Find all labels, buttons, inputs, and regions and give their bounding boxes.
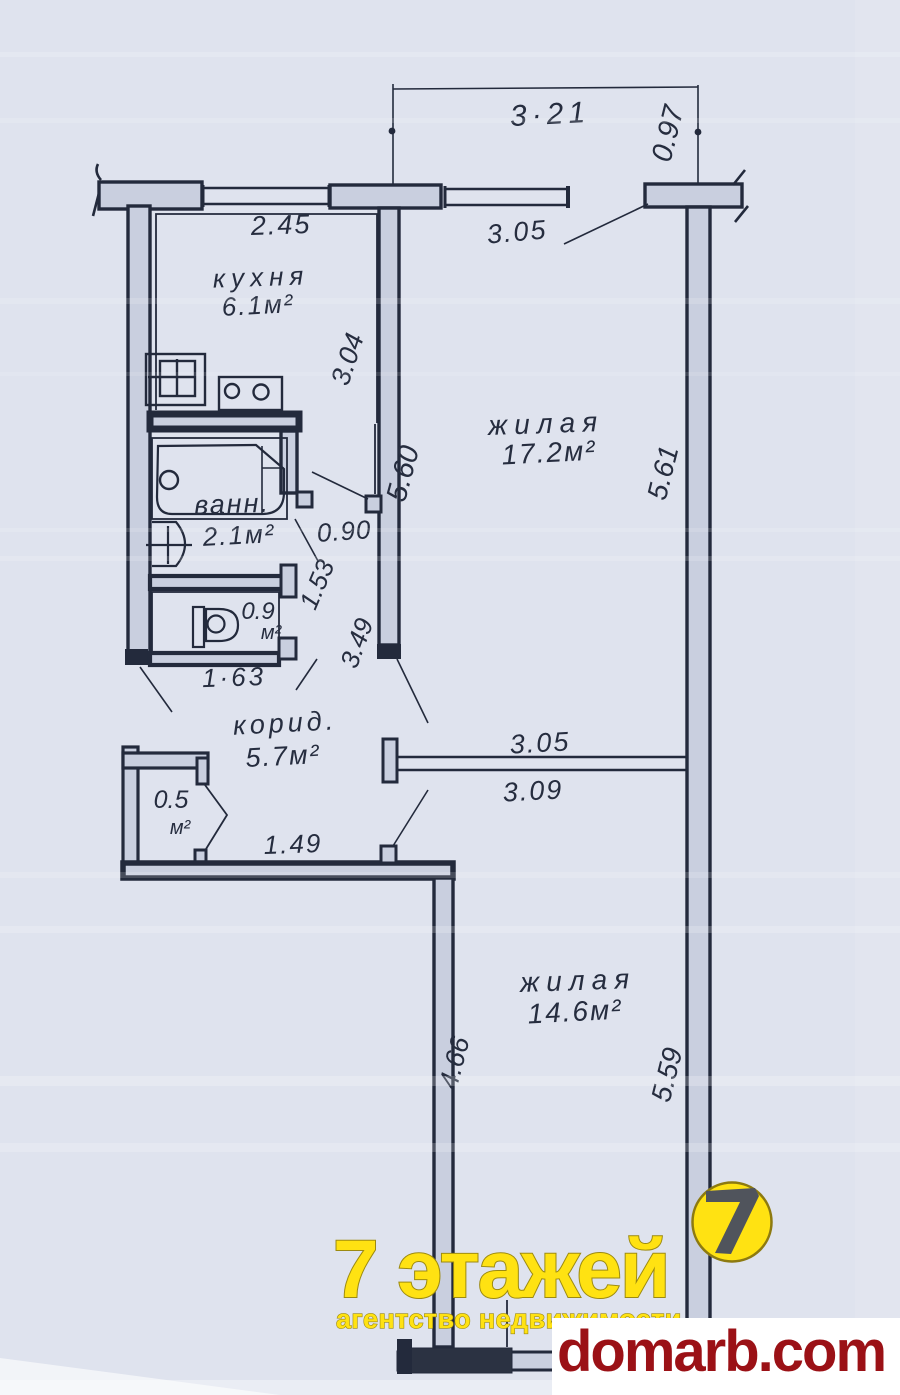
svg-text:1.49: 1.49 (263, 828, 323, 860)
svg-text:5.7м²: 5.7м² (245, 739, 322, 773)
svg-text:м²: м² (261, 622, 283, 644)
svg-text:корид.: корид. (232, 705, 338, 740)
svg-text:3·21: 3·21 (509, 96, 591, 133)
svg-text:0.5: 0.5 (154, 786, 189, 814)
svg-text:domarb.com: domarb.com (557, 1319, 885, 1384)
svg-text:3.09: 3.09 (502, 774, 564, 807)
svg-text:6.1м²: 6.1м² (221, 288, 295, 322)
svg-text:2.1м²: 2.1м² (201, 518, 276, 552)
svg-text:17.2м²: 17.2м² (501, 435, 598, 471)
svg-text:0.9: 0.9 (241, 598, 274, 625)
svg-text:1·63: 1·63 (202, 661, 267, 693)
svg-text:м²: м² (170, 817, 192, 839)
svg-text:7 этажей: 7 этажей (333, 1224, 668, 1315)
svg-text:3.05: 3.05 (509, 726, 571, 759)
svg-text:3.05: 3.05 (486, 214, 549, 249)
svg-text:кухня: кухня (212, 260, 309, 293)
svg-text:ванн.: ванн. (194, 488, 271, 521)
svg-text:2.45: 2.45 (249, 209, 312, 241)
svg-text:14.6м²: 14.6м² (527, 994, 624, 1030)
